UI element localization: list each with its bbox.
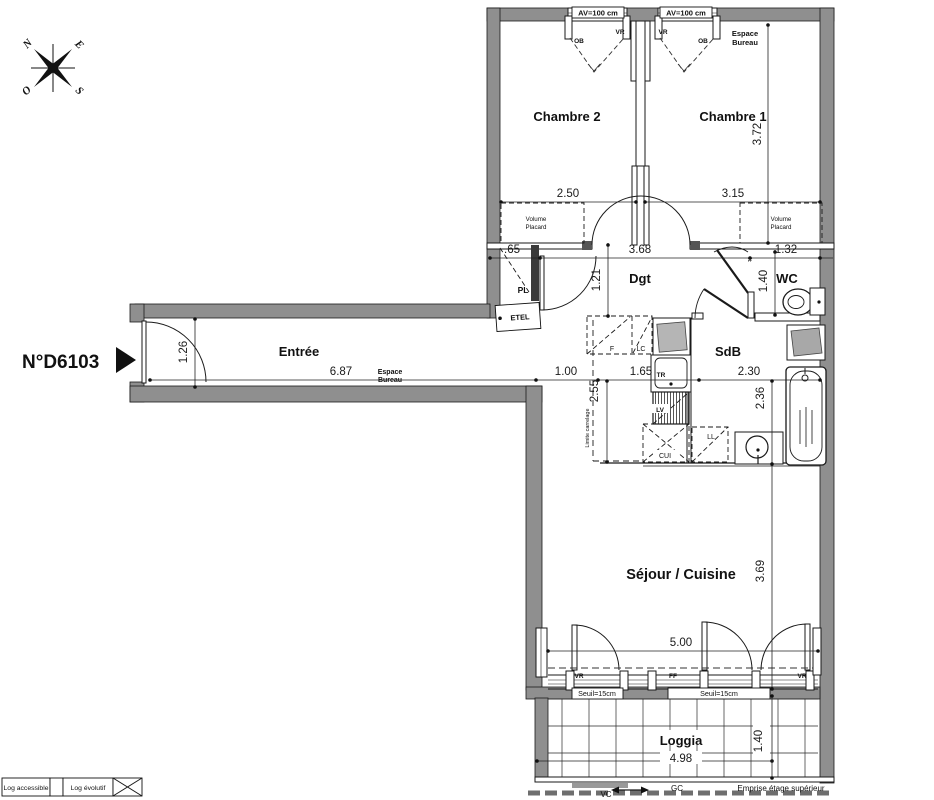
room-label-dgt: Dgt — [629, 271, 651, 286]
dim-w-dgt: 3.68 — [629, 244, 651, 256]
espace-bureau-corridor-1: Espace — [378, 369, 403, 376]
dishwasher-label: LV — [656, 407, 664, 414]
side-window-left — [536, 628, 547, 677]
sejour-door2-leaf — [702, 622, 707, 670]
volume-placard-right-1: Volume — [771, 216, 792, 223]
dim-w-chambre2: 2.50 — [557, 188, 579, 200]
dim-w-loggia: 4.98 — [670, 753, 692, 765]
dim-w-chambre1: 3.15 — [722, 188, 744, 200]
toilet-icon — [783, 289, 813, 315]
loggia-edge — [535, 777, 834, 782]
vr-label-w2: VR — [658, 29, 667, 36]
etel-unit: ETEL — [495, 302, 541, 331]
floor-plan-page: N E O S — [0, 0, 934, 800]
dim-h-entree: 1.26 — [178, 341, 190, 363]
dim-w-entree: 6.87 — [330, 366, 352, 378]
legend-evolutif: Log évolutif — [71, 785, 106, 792]
dim-w-sdb: 2.30 — [738, 366, 760, 378]
washer-label: LL — [707, 434, 715, 441]
dim-h-wc: 1.40 — [758, 270, 770, 292]
lc-label: LC — [637, 346, 646, 353]
room-label-wc: WC — [776, 271, 798, 286]
ob-label-w1: OB — [574, 38, 584, 45]
vr-label-w1: VR — [615, 29, 624, 36]
legend: Log accessible Log évolutif — [2, 778, 142, 796]
ff-label: FF — [669, 673, 677, 680]
tr-label: TR — [657, 372, 666, 379]
ob-label-w2: OB — [698, 38, 708, 45]
seuil-label-1: Seuil=15cm — [578, 689, 616, 698]
vc-bar — [572, 783, 628, 788]
room-label-sdb: SdB — [715, 344, 741, 359]
unit-number: N°D6103 — [22, 352, 99, 373]
dim-w-cuisine: 1.65 — [630, 366, 652, 378]
dim-h-sejour: 3.69 — [755, 560, 767, 582]
espace-bureau-top-2: Bureau — [732, 38, 758, 47]
volume-placard-right-2: Placard — [771, 224, 793, 231]
washbasin-icon — [735, 432, 783, 464]
corridor-door-leaf — [540, 256, 544, 310]
dim-h-chambre1: 3.72 — [752, 123, 764, 145]
volume-placard-left-2: Placard — [526, 224, 548, 231]
pl-closet-door-panel — [531, 245, 539, 301]
dim-h-loggia: 1.40 — [753, 730, 765, 752]
room-label-sejour: Séjour / Cuisine — [626, 567, 736, 583]
etel-label: ETEL — [510, 312, 530, 322]
dim-w-sejour: 5.00 — [670, 637, 692, 649]
fridge-label: F — [610, 346, 614, 353]
pl-label: PL — [518, 285, 529, 295]
dim-w-wc: 1.32 — [775, 244, 797, 256]
door-jamb — [690, 241, 700, 250]
dim-w-placard: .65 — [504, 244, 520, 256]
espace-bureau-top-1: Espace — [732, 29, 758, 38]
av-label-1: AV=100 cm — [578, 9, 618, 18]
sejour-door3-leaf — [805, 624, 810, 670]
seuil-label-2: Seuil=15cm — [700, 689, 738, 698]
dim-w-espace: 1.00 — [555, 366, 577, 378]
legend-accessible: Log accessible — [4, 785, 49, 792]
dim-h-dgt: 1.21 — [591, 269, 603, 291]
cooker-label: CUI — [659, 453, 671, 460]
vr-label-bottom-right: VR — [797, 673, 806, 680]
av-label-2: AV=100 cm — [666, 9, 706, 18]
gc-label: GC — [671, 784, 683, 793]
dim-h-cuisine: 2.55 — [589, 380, 601, 402]
sejour-door1-leaf — [572, 625, 577, 670]
room-label-entree: Entrée — [279, 344, 319, 359]
upper-floor-footprint-label: Emprise étage supérieur — [737, 784, 824, 793]
dim-break-mark: # — [748, 257, 752, 264]
room-label-chambre1: Chambre 1 — [699, 109, 766, 124]
volume-placard-left-1: Volume — [526, 216, 547, 223]
room-label-chambre2: Chambre 2 — [533, 109, 600, 124]
vc-label: VC — [600, 790, 611, 799]
floor-plan: N E O S — [0, 0, 934, 800]
vr-label-bottom-left: VR — [574, 673, 583, 680]
tile-limit-label: Limite carrelage — [585, 408, 591, 447]
room-label-loggia: Loggia — [660, 733, 703, 748]
entry-door-leaf — [142, 321, 146, 383]
dim-h-sdb: 2.36 — [755, 387, 767, 409]
espace-bureau-corridor-2: Bureau — [378, 377, 402, 384]
door-jamb — [582, 241, 592, 250]
